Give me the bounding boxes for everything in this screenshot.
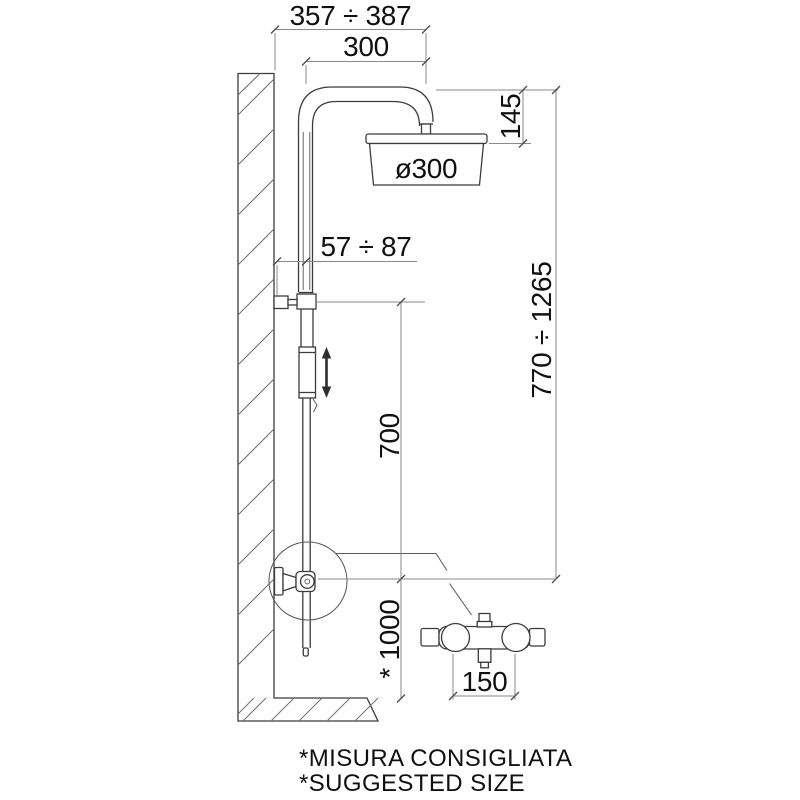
footnotes: *MISURA CONSIGLIATA *SUGGESTED SIZE <box>299 745 572 797</box>
dim-slide-travel: 700 <box>316 298 556 583</box>
head-connector-nub <box>422 124 431 134</box>
detail-leader-line <box>336 554 447 571</box>
mixer-valve-side-view <box>269 542 472 620</box>
mixer-top-knob <box>479 614 490 623</box>
technical-drawing-page: ø300 <box>0 0 800 800</box>
arm-projection-label: 300 <box>343 31 389 62</box>
dim-column-height: 770 ÷ 1265 <box>526 86 560 583</box>
shower-head-flange <box>366 134 487 144</box>
mixer-right-union <box>502 624 530 652</box>
up-down-adjust-arrow-icon <box>322 347 331 398</box>
slide-travel-label: 700 <box>374 413 405 459</box>
hose-clip <box>313 399 317 412</box>
valve-knob-face <box>301 575 315 589</box>
hand-shower-rail <box>303 398 310 648</box>
footnote-italian: *MISURA CONSIGLIATA <box>299 745 572 772</box>
mixer-detail-front-view <box>421 614 545 668</box>
mixer-height-label: * 1000 <box>374 599 405 678</box>
technical-drawing-canvas: ø300 <box>0 0 800 800</box>
bracket-wall-knob <box>274 296 288 309</box>
mixer-hose-outlet <box>478 649 491 663</box>
dim-wall-clearance: 57 ÷ 87 <box>273 231 417 295</box>
mixer-left-inlet <box>421 629 439 647</box>
bracket-link <box>288 300 297 306</box>
bracket-body <box>297 294 316 309</box>
floor-hatching <box>238 698 378 721</box>
mixer-left-union <box>442 624 470 652</box>
arm-inner-contour <box>313 102 420 293</box>
slider-sleeve <box>299 347 316 398</box>
slide-rail-and-hand-shower <box>299 309 331 656</box>
dim-mixer-height: * 1000 <box>374 579 405 703</box>
wall-hatching <box>238 74 274 666</box>
valve-body <box>283 574 296 592</box>
detail-leader-line-2 <box>450 584 472 616</box>
wall-clearance-label: 57 ÷ 87 <box>320 231 411 262</box>
mixer-right-inlet <box>530 629 546 647</box>
overall-width-label: 357 ÷ 387 <box>290 0 412 31</box>
wall-bracket <box>274 293 316 310</box>
hand-shower-tip <box>303 648 308 656</box>
column-height-label: 770 ÷ 1265 <box>526 262 557 399</box>
overhead-shower-head: ø300 <box>366 134 487 185</box>
head-diameter-label: ø300 <box>395 153 458 184</box>
footnote-english: *SUGGESTED SIZE <box>299 770 525 797</box>
valve-wall-flange <box>275 568 284 596</box>
head-height-label: 145 <box>495 94 526 140</box>
inlet-spacing-label: 150 <box>462 666 508 697</box>
dim-arm-projection: 300 <box>302 31 430 84</box>
